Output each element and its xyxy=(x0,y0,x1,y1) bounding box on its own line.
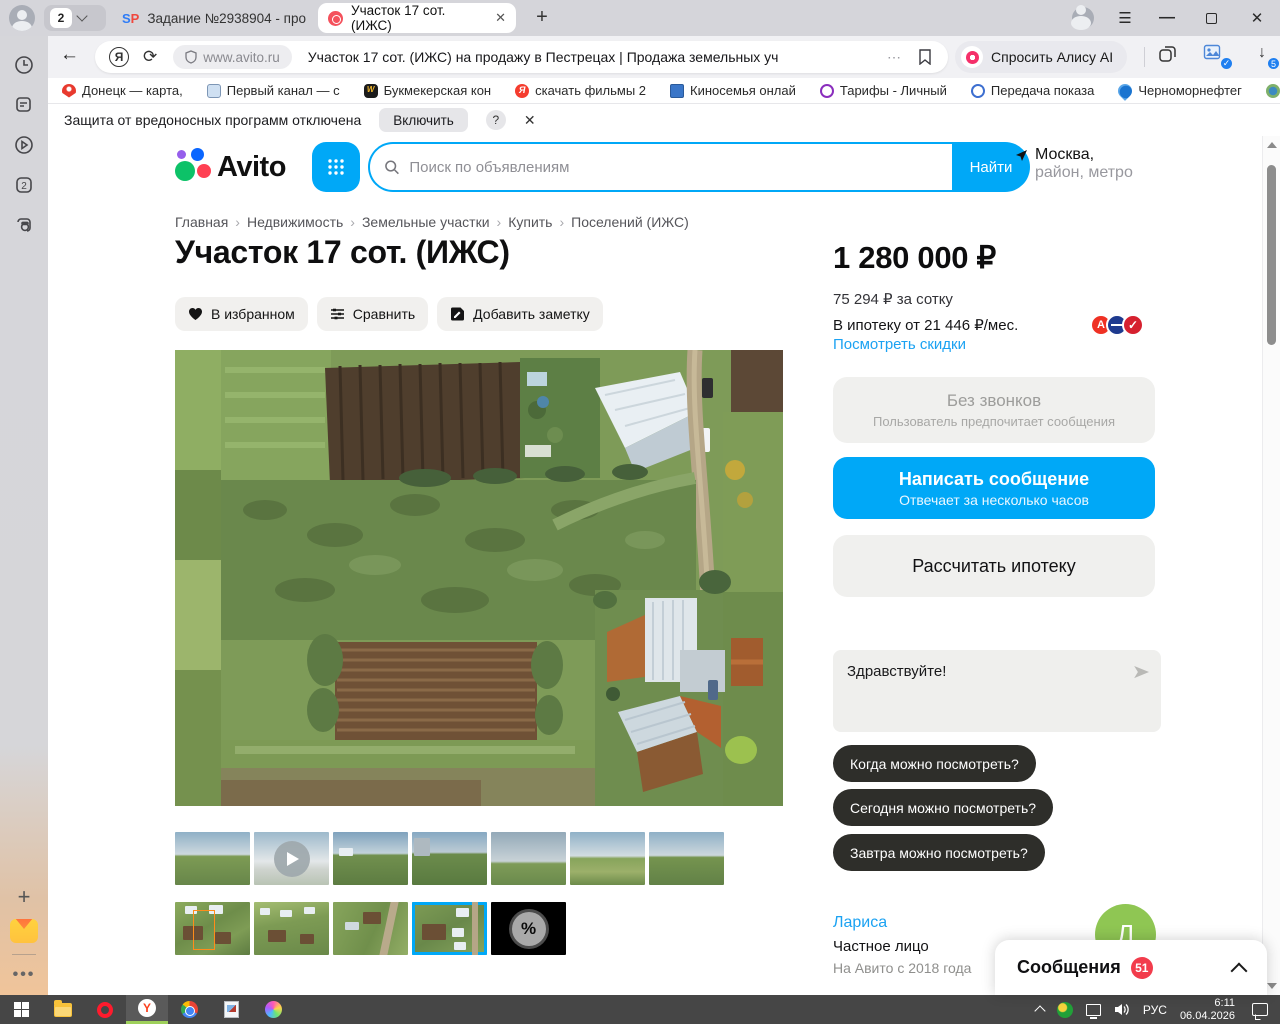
maximize-button[interactable] xyxy=(1196,0,1226,36)
thumbnail-video[interactable] xyxy=(254,832,329,885)
bookmarks-bar: Донецк — карта, Первый канал — с Букмеке… xyxy=(48,78,1280,104)
thumbnail-photo-6[interactable] xyxy=(570,832,645,885)
crumb-izhs[interactable]: Поселений (ИЖС) xyxy=(571,214,689,230)
opera-icon xyxy=(97,1002,113,1018)
heart-icon xyxy=(188,307,203,321)
bookmark-films[interactable]: скачать фильмы 2 xyxy=(515,83,646,98)
address-more-icon[interactable]: ⋯ xyxy=(887,49,902,66)
url-domain: www.avito.ru xyxy=(203,50,280,65)
view-discounts-link[interactable]: Посмотреть скидки xyxy=(833,336,966,353)
chrome-button[interactable] xyxy=(168,995,210,1024)
seller-type: Частное лицо xyxy=(833,938,971,955)
sidebar-divider xyxy=(12,954,36,955)
browser-tab-bar: 2 SP Задание №2938904 - про Участок 17 с… xyxy=(0,0,1280,36)
no-calls-button: Без звонков Пользователь предпочитает со… xyxy=(833,377,1155,443)
browser-menu-button[interactable]: ☰ xyxy=(1110,0,1140,36)
system-tray: РУС 6:11 06.04.2026 xyxy=(1036,997,1280,1023)
thumbnail-aerial-3[interactable] xyxy=(333,902,408,955)
avito-logo[interactable]: Avito xyxy=(175,148,286,182)
tray-expand-icon[interactable] xyxy=(1034,1005,1045,1016)
bookmark-perviy-kanal[interactable]: Первый канал — с xyxy=(207,83,340,98)
seller-name-link[interactable]: Лариса xyxy=(833,914,971,932)
favorite-button[interactable]: В избранном xyxy=(175,297,308,331)
yandex-icon xyxy=(515,84,529,98)
browser-side-panel: 2 + ••• xyxy=(0,36,48,995)
breadcrumb: Главная› Недвижимость› Земельные участки… xyxy=(175,214,689,230)
responds-in-hours: Отвечает за несколько часов xyxy=(899,492,1089,508)
dismiss-notification-icon[interactable]: ✕ xyxy=(524,112,536,129)
crumb-land[interactable]: Земельные участки xyxy=(362,214,490,230)
page-scrollbar[interactable] xyxy=(1262,136,1280,995)
ask-alice-button[interactable]: Спросить Алису AI xyxy=(955,41,1127,73)
feed-icon[interactable] xyxy=(0,88,48,122)
network-icon[interactable] xyxy=(1086,1004,1101,1016)
volume-icon[interactable] xyxy=(1114,1003,1130,1016)
yandex-button-icon[interactable]: Я xyxy=(109,47,129,67)
bank-icons: А ✓ xyxy=(1090,314,1144,336)
price-per-sotka: 75 294 ₽ за сотку xyxy=(833,290,953,308)
check-badge: ✓ xyxy=(1220,57,1233,70)
folder-icon xyxy=(54,1003,72,1017)
map-pin-icon xyxy=(62,84,76,98)
chat-input[interactable]: Здравствуйте! xyxy=(833,650,1161,732)
screenshot-icon[interactable] xyxy=(0,208,48,242)
thumbnail-photo-4[interactable] xyxy=(412,832,487,885)
listing-title: Участок 17 сот. (ИЖС) xyxy=(175,234,510,271)
scrollbar-thumb[interactable] xyxy=(1267,165,1276,345)
minimize-button[interactable]: — xyxy=(1152,0,1182,36)
tab-task[interactable]: SP Задание №2938904 - про xyxy=(112,0,312,36)
screen: 2 SP Задание №2938904 - про Участок 17 с… xyxy=(0,0,1280,1024)
start-button[interactable] xyxy=(0,995,42,1024)
alice-icon xyxy=(961,46,983,68)
thumbnail-row-1 xyxy=(175,832,724,885)
downloads-badge: 5 xyxy=(1267,57,1280,70)
listing-price: 1 280 000 ₽ xyxy=(833,240,996,276)
quick-question-tomorrow[interactable]: Завтра можно посмотреть? xyxy=(833,834,1045,871)
sidebar-more-icon[interactable]: ••• xyxy=(0,958,48,992)
swirl-icon xyxy=(265,1001,282,1018)
notification-text: Защита от вредоносных программ отключена xyxy=(64,112,361,128)
bookmark-donetsk[interactable]: Донецк — карта, xyxy=(62,83,183,98)
sp-favicon: SP xyxy=(122,11,139,26)
droplet-icon xyxy=(1115,81,1135,101)
bookmark-kinosemya[interactable]: Киносемья онлай xyxy=(670,83,796,98)
date: 06.04.2026 xyxy=(1180,1010,1235,1022)
crumb-buy[interactable]: Купить xyxy=(508,214,552,230)
windows-taskbar: Y РУС 6:11 06.04.2026 xyxy=(0,995,1280,1024)
bookmark-icon[interactable] xyxy=(918,49,932,65)
compare-button[interactable]: Сравнить xyxy=(317,297,428,331)
add-note-button[interactable]: Добавить заметку xyxy=(437,297,603,331)
tab-counter[interactable]: 2 xyxy=(44,5,106,31)
location-sub: район, метро xyxy=(1035,164,1133,181)
yandex-browser-icon: Y xyxy=(138,999,156,1017)
enable-protection-button[interactable]: Включить xyxy=(379,108,468,132)
search-input[interactable] xyxy=(407,158,938,177)
avito-logo-dots-icon xyxy=(175,148,211,182)
svg-text:2: 2 xyxy=(21,181,27,192)
bookmark-bookmaker[interactable]: Букмекерская кон xyxy=(364,83,492,98)
reload-icon[interactable]: ⟳ xyxy=(143,47,157,67)
paint-button[interactable] xyxy=(210,995,252,1024)
tray-green-app-icon[interactable] xyxy=(1057,1002,1073,1018)
address-bar[interactable]: Я ⟳ www.avito.ru Участок 17 сот. (ИЖС) н… xyxy=(95,41,948,73)
windows-logo-icon xyxy=(14,1002,29,1017)
back-button[interactable]: ← xyxy=(60,44,79,66)
chrome-icon xyxy=(181,1001,198,1018)
thumbnail-row-2: % xyxy=(175,902,566,955)
scroll-down-arrow[interactable] xyxy=(1267,983,1277,989)
www-icon xyxy=(364,84,378,98)
quick-question-when[interactable]: Когда можно посмотреть? xyxy=(833,745,1036,782)
thumbnail-discount[interactable]: % xyxy=(491,902,566,955)
chevron-down-icon xyxy=(76,10,87,21)
thumbnail-aerial-selected[interactable] xyxy=(412,902,487,955)
bookmark-peredacha[interactable]: Передача показа xyxy=(971,83,1094,98)
chevron-up-icon[interactable] xyxy=(1231,962,1248,979)
thumbnail-aerial-1[interactable] xyxy=(175,902,250,955)
aerial-photo-graphic xyxy=(175,350,783,806)
mail-envelope-icon xyxy=(10,919,38,943)
write-message-button[interactable]: Написать сообщение Отвечает за несколько… xyxy=(833,457,1155,519)
history-icon[interactable] xyxy=(0,48,48,82)
play-icon xyxy=(274,841,310,877)
taskbar-clock[interactable]: 6:11 06.04.2026 xyxy=(1180,997,1235,1023)
seller-block: Лариса Частное лицо На Авито с 2018 года xyxy=(833,914,971,976)
security-notification-bar: Защита от вредоносных программ отключена… xyxy=(48,104,1280,136)
search-field[interactable] xyxy=(368,142,952,192)
time: 6:11 xyxy=(1214,997,1235,1009)
paint-icon xyxy=(224,1001,239,1018)
no-calls-title: Без звонков xyxy=(947,391,1041,411)
main-photo[interactable] xyxy=(175,350,783,806)
bookmark-komu[interactable]: Кому xyxy=(1266,83,1280,98)
crumb-main[interactable]: Главная xyxy=(175,214,228,230)
bank-icon-3: ✓ xyxy=(1122,314,1144,336)
thumbnail-aerial-2[interactable] xyxy=(254,902,329,955)
opera-button[interactable] xyxy=(84,995,126,1024)
messages-popup[interactable]: Сообщения 51 xyxy=(995,940,1267,995)
profile-avatar-icon[interactable] xyxy=(9,5,35,31)
link-icon xyxy=(969,82,987,100)
domain-pill[interactable]: www.avito.ru xyxy=(173,45,292,69)
avito-logo-text: Avito xyxy=(217,153,286,182)
help-icon[interactable]: ? xyxy=(486,110,506,130)
thumbnail-photo-5[interactable] xyxy=(491,832,566,885)
crumb-realty[interactable]: Недвижимость xyxy=(247,214,343,230)
location-city: Москва, xyxy=(1035,146,1094,163)
tv-icon xyxy=(207,84,221,98)
thumbnail-photo-3[interactable] xyxy=(333,832,408,885)
calculate-mortgage-button[interactable]: Рассчитать ипотеку xyxy=(833,535,1155,597)
compare-icon xyxy=(330,307,345,321)
bookmark-tarify[interactable]: Тарифы - Личный xyxy=(820,83,947,98)
new-tab-button[interactable]: + xyxy=(530,6,554,29)
categories-button[interactable] xyxy=(312,142,360,192)
bookmark-chernomor[interactable]: Черноморнефтег xyxy=(1118,83,1242,98)
send-message-icon[interactable]: ➤ xyxy=(1132,661,1150,684)
action-center-icon[interactable] xyxy=(1252,1003,1268,1016)
thumbnail-photo-1[interactable] xyxy=(175,832,250,885)
downloads-icon[interactable]: ↓ 5 xyxy=(1250,44,1274,66)
avatar-icon xyxy=(1072,7,1094,29)
quick-question-today[interactable]: Сегодня можно посмотреть? xyxy=(833,789,1053,826)
thumbnail-photo-7[interactable] xyxy=(649,832,724,885)
page-title-in-address: Участок 17 сот. (ИЖС) на продажу в Пестр… xyxy=(308,49,778,65)
search-bar: Найти xyxy=(368,142,1030,192)
tab-label: Задание №2938904 - про xyxy=(147,11,306,26)
file-explorer-button[interactable] xyxy=(42,995,84,1024)
video-play-icon[interactable] xyxy=(0,128,48,162)
location-arrow-icon xyxy=(1015,149,1028,162)
note-icon xyxy=(450,307,465,321)
image-extension-icon[interactable]: ✓ xyxy=(1203,44,1227,66)
yandex-browser-button[interactable]: Y xyxy=(126,995,168,1024)
maximize-icon xyxy=(1206,13,1217,24)
discount-badge-icon: % xyxy=(512,912,546,946)
no-calls-subtitle: Пользователь предпочитает сообщения xyxy=(873,414,1115,429)
search-icon xyxy=(384,159,399,175)
shared-tabs-icon[interactable] xyxy=(1158,44,1182,66)
toolbar-divider xyxy=(1144,47,1145,67)
seller-since: На Авито с 2018 года xyxy=(833,960,971,976)
browser-user-avatar[interactable] xyxy=(1068,0,1098,36)
close-tab-icon[interactable]: ✕ xyxy=(495,10,506,26)
yandex-mail-icon[interactable] xyxy=(0,914,48,948)
avito-page: Avito Найти Москва, район, метро Главная… xyxy=(48,136,1262,995)
avito-favicon-icon xyxy=(328,11,343,26)
tabs-panel-icon[interactable]: 2 xyxy=(0,168,48,202)
chat-draft-box: Здравствуйте! ➤ xyxy=(833,650,1161,732)
alice-label: Спросить Алису AI xyxy=(991,49,1113,65)
tab-avito-active[interactable]: Участок 17 сот. (ИЖС) ✕ xyxy=(318,3,516,33)
shield-icon xyxy=(185,50,197,64)
browser-toolbar: ← Я ⟳ www.avito.ru Участок 17 сот. (ИЖС)… xyxy=(48,36,1280,78)
monitor-icon xyxy=(670,84,684,98)
location-selector[interactable]: Москва, район, метро xyxy=(1015,146,1133,182)
tab-label: Участок 17 сот. (ИЖС) xyxy=(351,3,487,33)
tab-count: 2 xyxy=(50,8,72,28)
listing-actions: В избранном Сравнить Добавить заметку xyxy=(175,297,603,331)
grid-dots-icon xyxy=(326,157,346,177)
add-panel-icon[interactable]: + xyxy=(0,880,48,914)
globe-icon xyxy=(1266,84,1280,98)
browser-swirl-button[interactable] xyxy=(252,995,294,1024)
scroll-up-arrow[interactable] xyxy=(1267,142,1277,148)
close-window-button[interactable]: ✕ xyxy=(1242,0,1272,36)
mortgage-line: В ипотеку от 21 446 ₽/мес. xyxy=(833,316,1018,334)
purple-circle-icon xyxy=(820,84,834,98)
keyboard-language[interactable]: РУС xyxy=(1143,1003,1167,1017)
messages-badge: 51 xyxy=(1131,957,1153,979)
messages-label: Сообщения xyxy=(1017,957,1121,978)
